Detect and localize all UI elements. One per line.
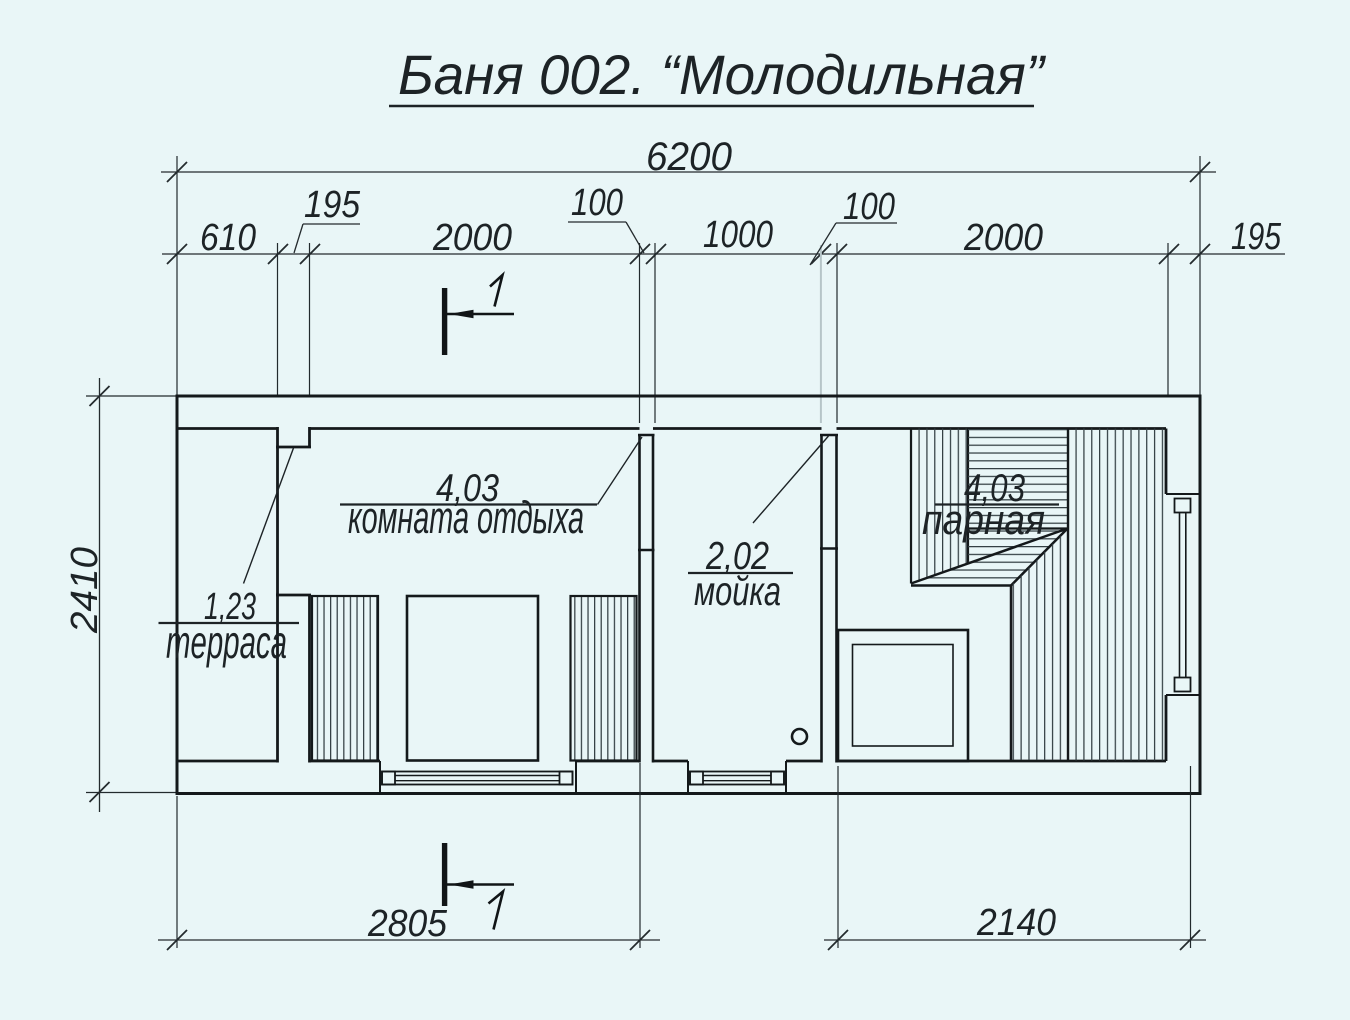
svg-text:100: 100	[843, 186, 895, 228]
svg-text:2410: 2410	[64, 547, 106, 634]
svg-text:мойка: мойка	[694, 568, 781, 614]
svg-text:2000: 2000	[963, 217, 1043, 259]
svg-text:комната отдыха: комната отдыха	[348, 492, 584, 543]
svg-text:терраса: терраса	[166, 616, 287, 668]
svg-text:610: 610	[200, 217, 256, 259]
svg-text:195: 195	[1231, 216, 1282, 258]
svg-text:2000: 2000	[432, 217, 512, 259]
svg-text:2140: 2140	[976, 902, 1056, 944]
svg-text:100: 100	[571, 182, 623, 224]
svg-text:1000: 1000	[703, 214, 773, 256]
svg-text:парная: парная	[922, 496, 1045, 543]
svg-text:Баня 002. “Молодильная”: Баня 002. “Молодильная”	[398, 43, 1046, 106]
svg-text:6200: 6200	[646, 135, 732, 179]
svg-text:2805: 2805	[367, 903, 448, 945]
svg-text:195: 195	[304, 184, 361, 226]
